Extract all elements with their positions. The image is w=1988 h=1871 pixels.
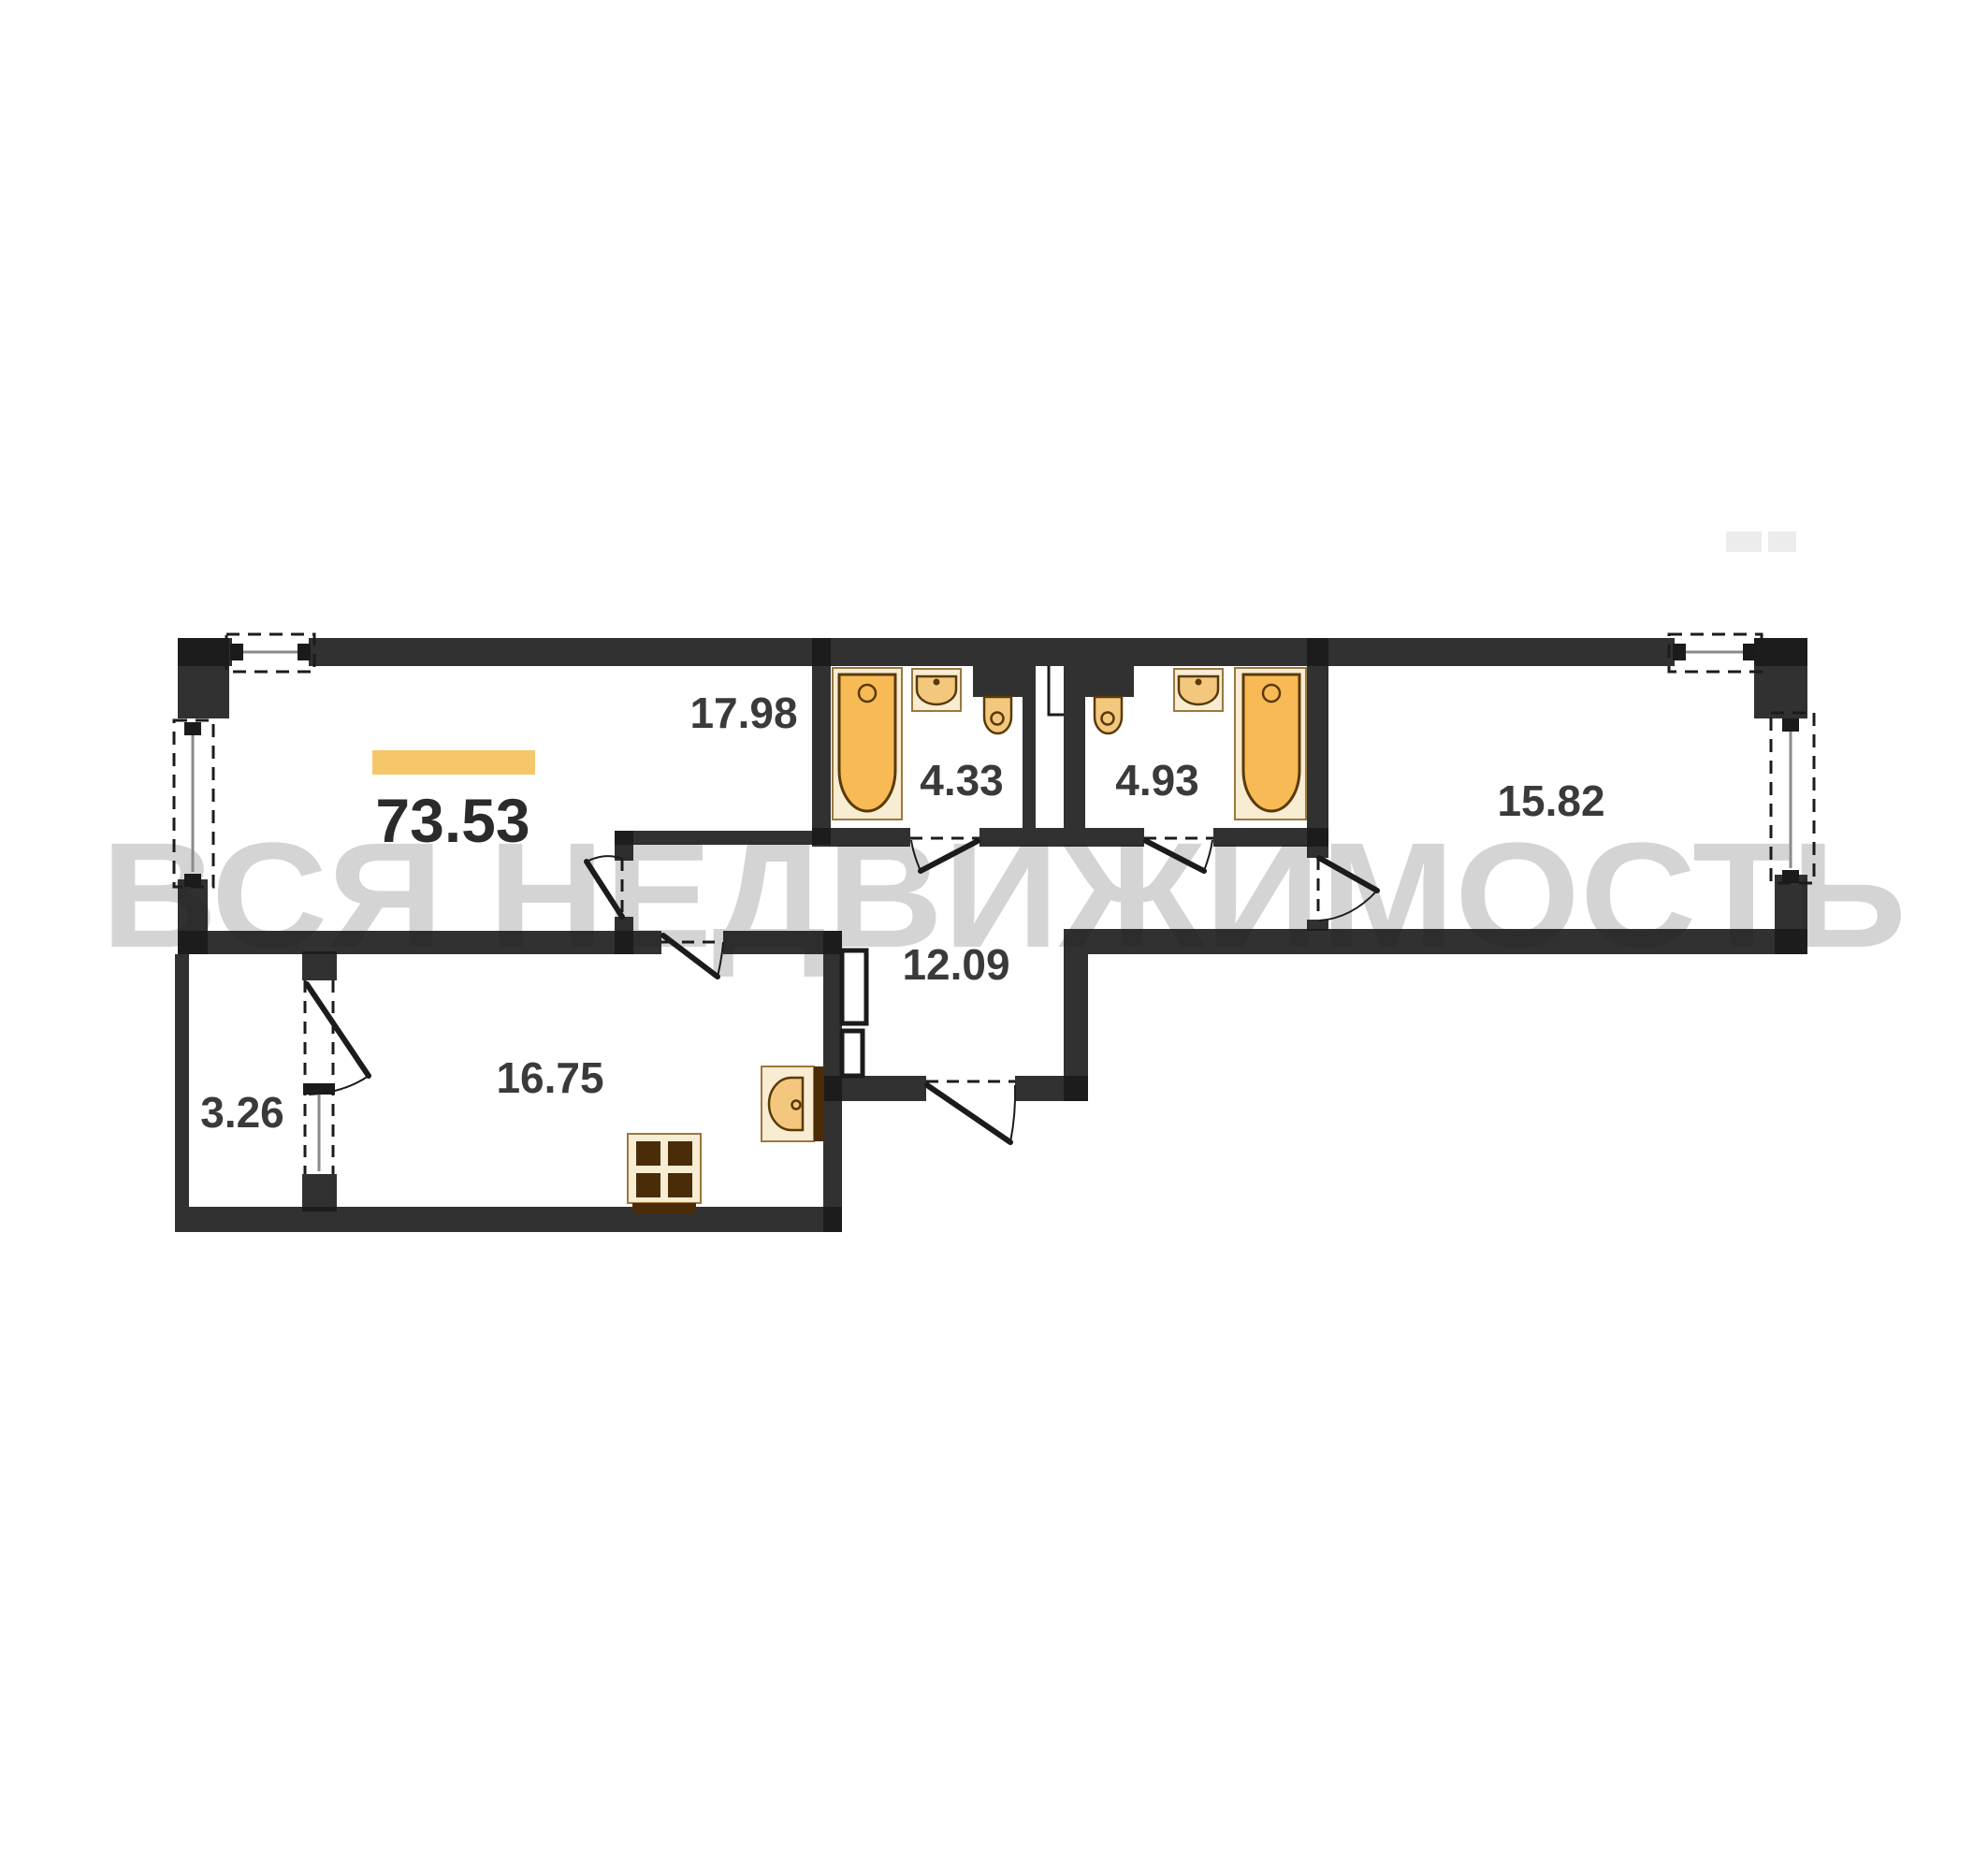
kitchen-sink-symbol: [762, 1066, 824, 1141]
shaft-wall: [1064, 666, 1085, 828]
room-label-bathroom-2: 4.93: [1115, 756, 1199, 805]
toilet-symbol: [1095, 697, 1122, 733]
sink-symbol: [912, 669, 961, 711]
total-area-bar: [372, 750, 535, 775]
sink-symbol: [1174, 669, 1223, 711]
wall-segment: [309, 638, 1675, 666]
wall-segment: [615, 917, 633, 954]
stove-symbol: [628, 1134, 701, 1213]
balcony-glazing: [303, 980, 335, 1174]
wall-segment: [1064, 929, 1807, 954]
wall-segment: [302, 1174, 337, 1211]
wall-segment: [812, 638, 831, 845]
duct-niche: [842, 950, 866, 1023]
room-label-kitchen: 16.75: [496, 1053, 603, 1102]
watermark-fragment: [1726, 531, 1796, 552]
wall-segment: [175, 1207, 842, 1232]
toilet-stub-wall: [1085, 666, 1134, 697]
duct-niche: [842, 1031, 863, 1076]
shaft-wall: [1023, 666, 1036, 828]
wall-segment: [1015, 1076, 1088, 1101]
bathtub-symbol: [1235, 668, 1306, 819]
floorplan-page: ВСЯ НЕДВИЖИМОСТЬ: [0, 0, 1988, 1871]
wall-segment: [812, 828, 910, 847]
wall-segment: [302, 951, 337, 980]
wall-segment: [178, 931, 661, 954]
wall-corner: [178, 638, 229, 718]
wall-segment: [979, 828, 1144, 847]
total-area-badge: 73.53: [372, 750, 535, 855]
duct-niches: [842, 950, 866, 1076]
room-label-balcony: 3.26: [200, 1088, 284, 1137]
total-area-value: 73.53: [375, 786, 530, 855]
room-label-living: 17.98: [689, 689, 797, 737]
room-label-bathroom-1: 4.33: [920, 756, 1004, 805]
toilet-symbol: [984, 697, 1011, 733]
door-entrance: [926, 1081, 1015, 1142]
toilet-stub-wall: [973, 666, 1023, 697]
window-top-left: [226, 634, 314, 672]
floor-plan-svg: ВСЯ НЕДВИЖИМОСТЬ: [0, 0, 1988, 1871]
room-label-bedroom: 15.82: [1497, 776, 1604, 825]
vent-shaft: [1036, 666, 1064, 828]
wall-segment: [615, 831, 812, 845]
bathtub-symbol: [833, 668, 902, 819]
wall-segment: [175, 954, 189, 1207]
wall-segment: [823, 931, 842, 1232]
window-top-right: [1669, 634, 1762, 672]
wall-segment: [1307, 638, 1328, 847]
door-balcony: [307, 984, 369, 1095]
room-label-hallway: 12.09: [902, 940, 1009, 989]
